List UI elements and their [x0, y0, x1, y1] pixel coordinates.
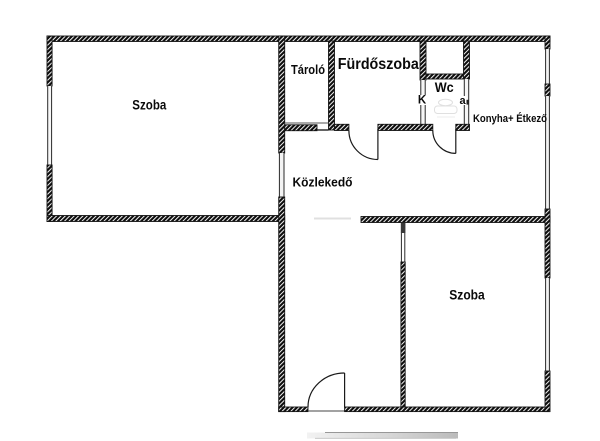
svg-text:Tároló: Tároló: [291, 63, 325, 77]
svg-text:Wc: Wc: [435, 80, 454, 95]
svg-text:a: a: [459, 95, 466, 107]
svg-text:Közlekedő: Közlekedő: [293, 175, 353, 190]
svg-text:K: K: [418, 95, 427, 107]
svg-text:Szoba: Szoba: [449, 287, 485, 303]
svg-text:Fürdőszoba: Fürdőszoba: [338, 56, 419, 73]
svg-text:Szoba: Szoba: [132, 98, 166, 113]
svg-text:Konyha+ Étkező: Konyha+ Étkező: [473, 112, 547, 125]
